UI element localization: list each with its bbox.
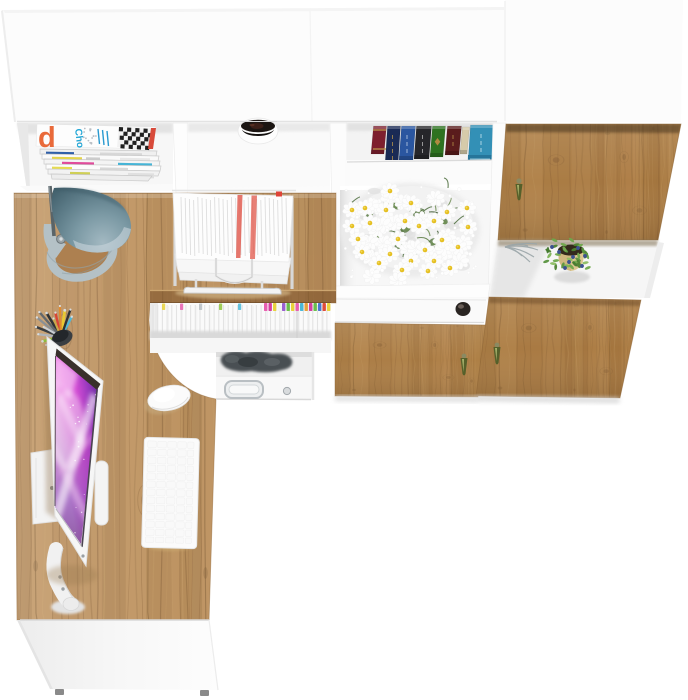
svg-text:d: d	[38, 122, 56, 154]
svg-text:Cho: Cho	[72, 128, 85, 149]
